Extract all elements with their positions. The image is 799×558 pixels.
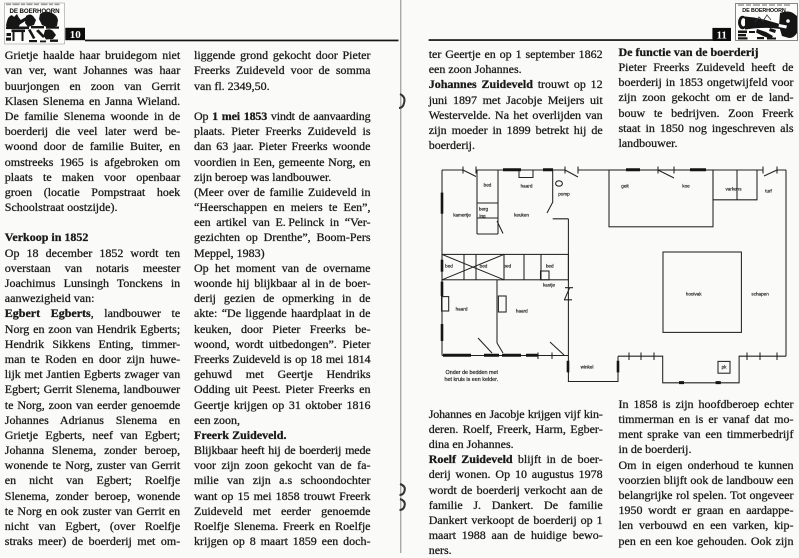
svg-text:DE BOERHOORN: DE BOERHOORN [742,8,786,14]
